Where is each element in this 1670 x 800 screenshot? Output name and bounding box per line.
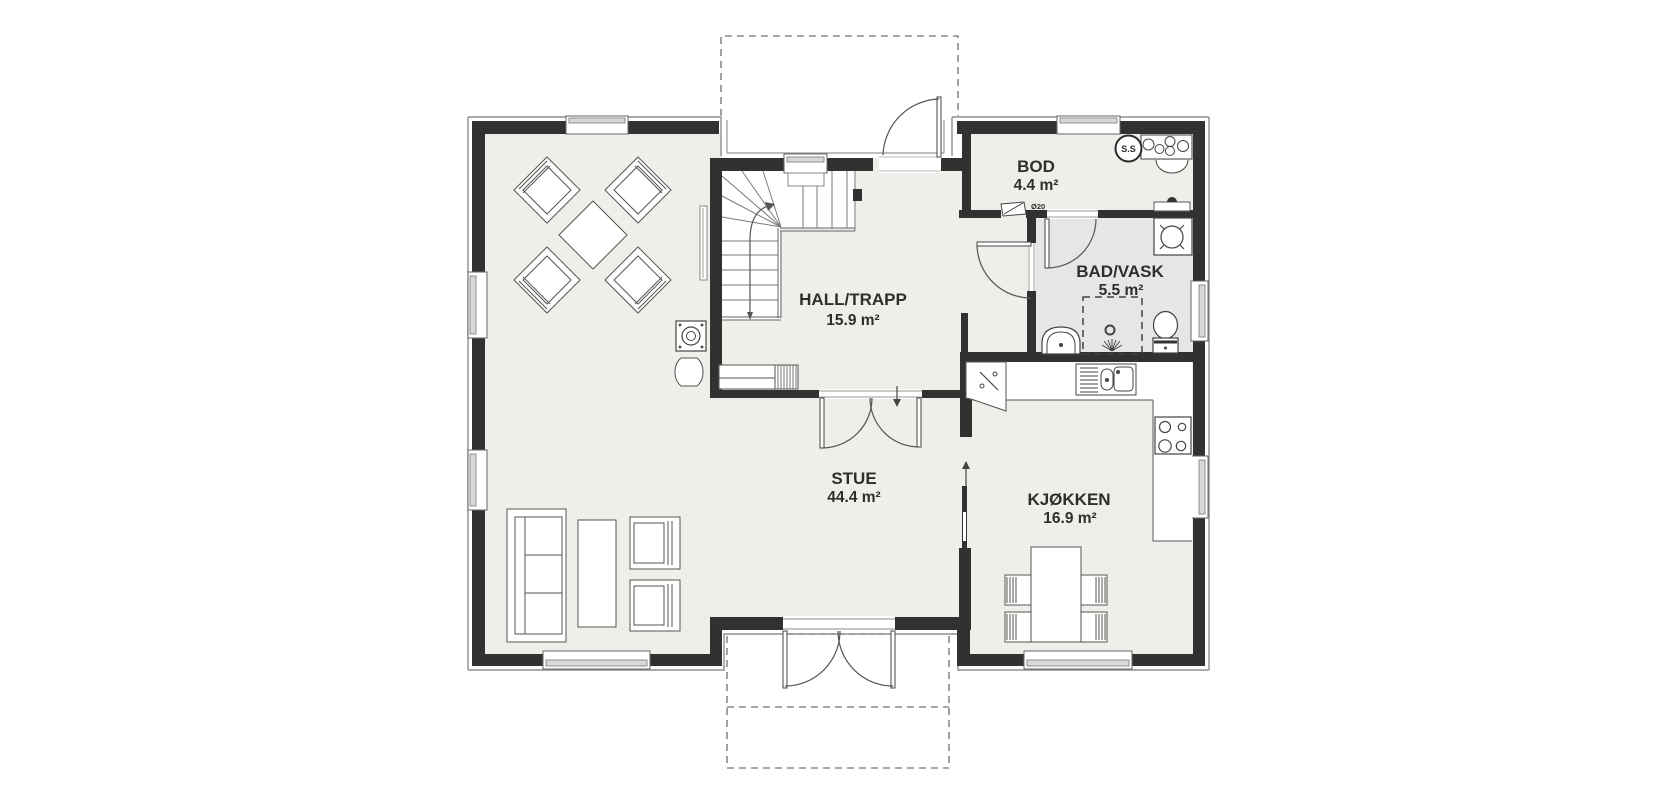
- svg-text:BOD: BOD: [1017, 157, 1055, 176]
- svg-text:KJØKKEN: KJØKKEN: [1027, 490, 1110, 509]
- svg-text:16.9 m²: 16.9 m²: [1043, 510, 1096, 527]
- svg-text:STUE: STUE: [831, 469, 876, 488]
- svg-text:15.9 m²: 15.9 m²: [826, 312, 879, 329]
- svg-text:HALL/TRAPP: HALL/TRAPP: [799, 290, 907, 309]
- svg-text:Ø20: Ø20: [1031, 202, 1045, 211]
- svg-text:5.5 m²: 5.5 m²: [1099, 282, 1144, 299]
- svg-text:4.4 m²: 4.4 m²: [1014, 177, 1059, 194]
- svg-text:BAD/VASK: BAD/VASK: [1076, 262, 1164, 281]
- svg-text:S.S: S.S: [1121, 144, 1136, 154]
- svg-text:44.4 m²: 44.4 m²: [827, 489, 880, 506]
